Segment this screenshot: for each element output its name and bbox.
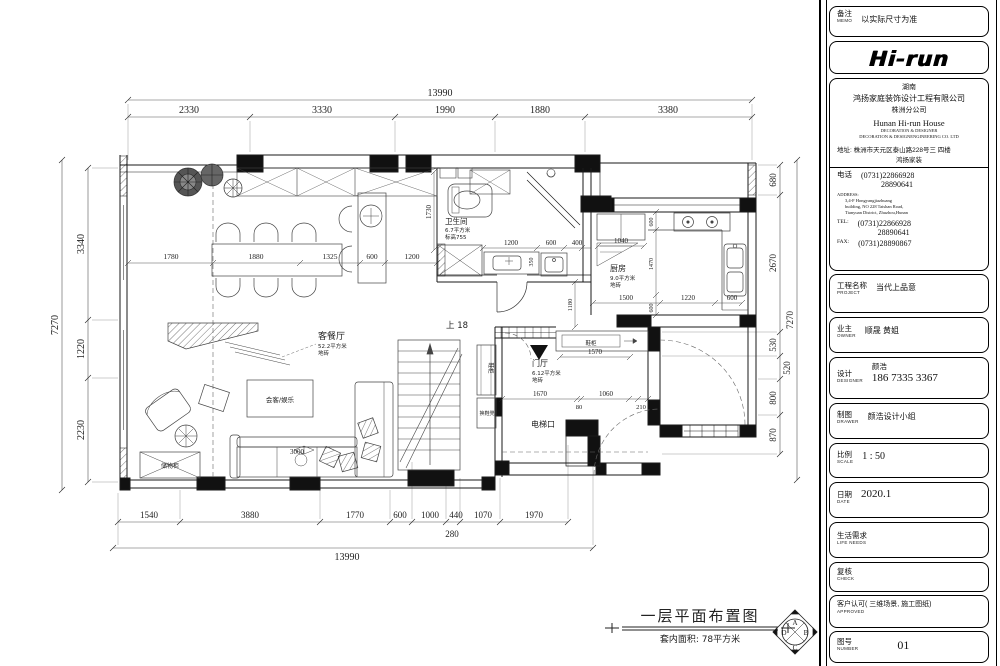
dim-label: 530 [768, 338, 778, 352]
compass-s: C [793, 644, 798, 652]
dim-label: 1325 [323, 252, 338, 261]
dim-label: 7270 [50, 315, 61, 335]
entry-cabinet-label: 鞋柜 [487, 362, 495, 374]
room-label-bath: 卫生间 [445, 216, 468, 226]
dining-chair [292, 278, 316, 297]
dim-label: 3330 [312, 105, 332, 116]
project-value: 当代上品意 [876, 282, 916, 293]
scale-label-cn: 比例 [837, 451, 853, 459]
basin [493, 256, 521, 270]
owner-label-en: OWNER [837, 333, 856, 338]
titleblock-separator [819, 0, 827, 666]
drawer-value: 颜浩设计小组 [868, 411, 916, 422]
dim-label: 7270 [785, 311, 795, 330]
tel-value1: (0731)22866928 [858, 219, 911, 228]
stairs [398, 340, 462, 470]
check-label-cn: 复核 [837, 568, 981, 576]
number-label-cn: 图号 [837, 638, 858, 646]
compass-w: D [781, 629, 786, 637]
dim-chain-left [59, 157, 118, 493]
drawer-box: 制图 DRAWER 颜浩设计小组 [829, 403, 989, 439]
dim-label: 400 [572, 239, 583, 247]
owner-box: 业主 OWNER 顺晟 黄姐 [829, 317, 989, 353]
bar-chair [339, 206, 352, 272]
scale-value: 1 : 50 [862, 451, 885, 462]
scale-label-en: SCALE [837, 459, 853, 464]
fax-label: FAX: [837, 239, 849, 245]
memo-label-en: MEMO [837, 18, 852, 23]
room-area: 52.2平方米 [318, 342, 347, 350]
check-label-en: CHECK [837, 576, 981, 581]
room-label-living: 客餐厅 [318, 330, 345, 342]
dim-label: 1470 [649, 258, 655, 270]
dining-chair [254, 223, 278, 242]
dim-label: 3340 [76, 234, 87, 254]
toilet [454, 191, 480, 209]
dim-label: 1540 [140, 510, 159, 520]
owner-value: 顺晟 黄姐 [865, 325, 899, 336]
room-area: 9.0平方米 [610, 274, 636, 282]
drawer-label-cn: 制图 [837, 411, 859, 419]
dim-label: 1570 [588, 348, 603, 356]
designer-label-en: DESIGNER [837, 378, 863, 383]
bar-table [358, 193, 386, 283]
armchair [142, 385, 192, 433]
foyer-fixtures [477, 331, 648, 428]
room-area: 6.12平方米 [532, 369, 561, 377]
dim-chain-right [662, 157, 800, 483]
drawing-sheet: 13990 2330 3330 1990 1880 3380 1540 3880… [0, 0, 1000, 666]
designer-label-cn: 设计 [837, 370, 863, 378]
dim-label: 280 [445, 529, 459, 539]
company-name-en: Hunan Hi-run House [837, 118, 981, 128]
approved-label-cn: 客户认可( 三维场景, 施工图纸) [837, 601, 981, 609]
dim-label: 600 [393, 510, 407, 520]
dim-label: 1730 [425, 205, 433, 220]
dim-label: 1770 [346, 510, 365, 520]
dim-label: 1220 [681, 294, 696, 302]
compass-e: B [804, 629, 809, 637]
dim-label: 3380 [658, 105, 678, 116]
dim-entry [499, 354, 651, 402]
shoe-cabinet-label: 鞋柜 [585, 339, 597, 347]
date-label-en: DATE [837, 499, 852, 504]
dim-label: 80 [576, 404, 583, 411]
company-addr-label: 地址: [837, 147, 852, 154]
dim-label: 1990 [435, 105, 455, 116]
cushion [358, 418, 379, 439]
number-label-en: NUMBER [837, 646, 858, 651]
project-label-en: PROJECT [837, 290, 867, 295]
memo-label-cn: 备注 [837, 10, 852, 18]
room-floor: 地砖 [532, 376, 544, 384]
dim-label: 1670 [533, 390, 548, 398]
dim-label: 3880 [241, 510, 260, 520]
dim-label: 600 [366, 252, 378, 261]
address-line3: Tianyuan District, Zhuzhou,Hunan [837, 210, 981, 216]
room-area: 6.7平方米 [445, 226, 471, 234]
ottoman [199, 384, 230, 411]
life-needs-box: 生活需求 LIFE NEEDS [829, 522, 989, 558]
cushion [319, 446, 340, 467]
footer-title-block: 一层平面布置图 套内面积: 78平方米 [605, 607, 795, 645]
compass-n: A [792, 619, 797, 627]
designer-phone: 186 7335 3367 [872, 372, 938, 384]
designer-name: 颜浩 [872, 361, 938, 372]
dim-label: 2230 [76, 420, 87, 440]
elevator-label: 电梯口 [531, 419, 555, 429]
company-addr-value2: 鸿扬家装 [837, 154, 981, 164]
room-floor: 地砖 [318, 349, 330, 357]
sheet-right-border [996, 0, 997, 666]
room-label-foyer: 门厅 [532, 358, 548, 368]
dining-chair [216, 223, 240, 242]
dim-label: 1060 [599, 390, 614, 398]
dim-label: 1070 [474, 510, 493, 520]
life-needs-label-cn: 生活需求 [837, 532, 981, 540]
dim-label: 520 [782, 361, 792, 375]
date-label-cn: 日期 [837, 491, 852, 499]
dim-label: 13990 [428, 88, 453, 99]
dim-label: 1880 [530, 105, 550, 116]
company-name-cn: 鸿扬家庭装饰设计工程有限公司 [837, 93, 981, 104]
dim-label: 870 [768, 428, 778, 442]
approved-label-en: APPROVED [837, 609, 981, 614]
dim-label: 600 [727, 294, 738, 302]
dim-label: 1970 [525, 510, 544, 520]
drawing-title: 一层平面布置图 [640, 607, 759, 625]
date-box: 日期 DATE 2020.1 [829, 482, 989, 518]
dim-label: 1200 [405, 252, 420, 261]
cushion [361, 442, 381, 462]
dim-label: 680 [768, 173, 778, 187]
life-needs-label-en: LIFE NEEDS [837, 540, 981, 545]
memo-box: 备注 MEMO 以实际尺寸为准 [829, 6, 989, 37]
dim-label: 2670 [768, 254, 778, 273]
phone-label: 电话 [837, 171, 852, 179]
check-box: 复核 CHECK [829, 562, 989, 592]
memo-value: 以实际尺寸为准 [861, 14, 917, 25]
room-label-kitchen: 厨房 [610, 263, 626, 273]
door-arcs [497, 282, 548, 360]
dim-label: 1000 [421, 510, 440, 520]
project-box: 工程名称 PROJECT 当代上品意 [829, 274, 989, 313]
designer-box: 设计 DESIGNER 颜浩 186 7335 3367 [829, 357, 989, 399]
phone-value2: 28890641 [861, 180, 914, 189]
dim-label: 1780 [164, 252, 179, 261]
floor-plan: 13990 2330 3330 1990 1880 3380 1540 3880… [0, 0, 822, 666]
dim-label: 600 [649, 304, 655, 313]
dim-label: 210 [636, 404, 646, 411]
project-label-cn: 工程名称 [837, 282, 867, 290]
company-branch: 株洲分公司 [837, 105, 981, 115]
dim-label: 3000 [290, 448, 305, 456]
dim-label: 2330 [179, 105, 199, 116]
company-box: 湖南 鸿扬家庭装饰设计工程有限公司 株洲分公司 Hunan Hi-run Hou… [829, 78, 989, 271]
company-region: 湖南 [837, 82, 981, 92]
dim-label: 440 [449, 510, 463, 520]
dim-label: 13990 [335, 552, 360, 563]
dim-label: 1220 [76, 339, 87, 359]
walls [120, 155, 756, 490]
shoe-bench-label: 换鞋凳 [479, 410, 494, 417]
number-value: 01 [897, 638, 909, 653]
company-addr-value: 株洲市天元区泰山路228号三 四楼 [854, 147, 951, 154]
company-logo: Hi-run [836, 47, 982, 71]
dim-label: 1500 [619, 294, 634, 302]
number-box: 图号 NUMBER 01 [829, 631, 989, 663]
dining-set [212, 193, 386, 297]
dining-chair [254, 278, 278, 297]
dim-label: 1200 [504, 239, 519, 247]
dining-chair [216, 278, 240, 297]
stairs-up-label: 上 18 [446, 321, 468, 331]
dim-label: 350 [529, 258, 535, 267]
company-sub-en2: DECORATION & DESIGNENGINEERING CO. LTD [837, 134, 981, 140]
title-block: 备注 MEMO 以实际尺寸为准 Hi-run 湖南 鸿扬家庭装饰设计工程有限公司… [828, 0, 992, 666]
phone-value1: (0731)22866928 [861, 171, 914, 180]
dim-label: 600 [546, 239, 557, 247]
room-floor: 地砖 [610, 281, 622, 289]
plant-icons [174, 164, 242, 197]
approved-box: 客户认可( 三维场景, 施工图纸) APPROVED [829, 595, 989, 628]
dim-label: 1880 [249, 252, 264, 261]
dining-chair [292, 223, 316, 242]
logo-box: Hi-run [829, 41, 989, 74]
tel-label: TEL: [837, 219, 849, 225]
fax-value: (0731)28890867 [858, 239, 911, 248]
sofa [230, 382, 393, 478]
dim-label: 1180 [567, 299, 574, 312]
owner-label-cn: 业主 [837, 325, 856, 333]
dim-label: 800 [768, 391, 778, 405]
storage-label: 储物柜 [161, 462, 179, 470]
drawer-label-en: DRAWER [837, 419, 859, 424]
dim-label: 600 [649, 218, 655, 227]
tel-value2: 28890641 [858, 228, 911, 237]
date-value: 2020.1 [861, 488, 891, 500]
game-table-label: 会客/娱乐 [266, 395, 295, 404]
room-note: 标高755 [445, 233, 467, 241]
drawing-subtitle: 套内面积: 78平方米 [660, 633, 740, 645]
dim-label: 1040 [614, 237, 629, 245]
scale-box: 比例 SCALE 1 : 50 [829, 443, 989, 478]
